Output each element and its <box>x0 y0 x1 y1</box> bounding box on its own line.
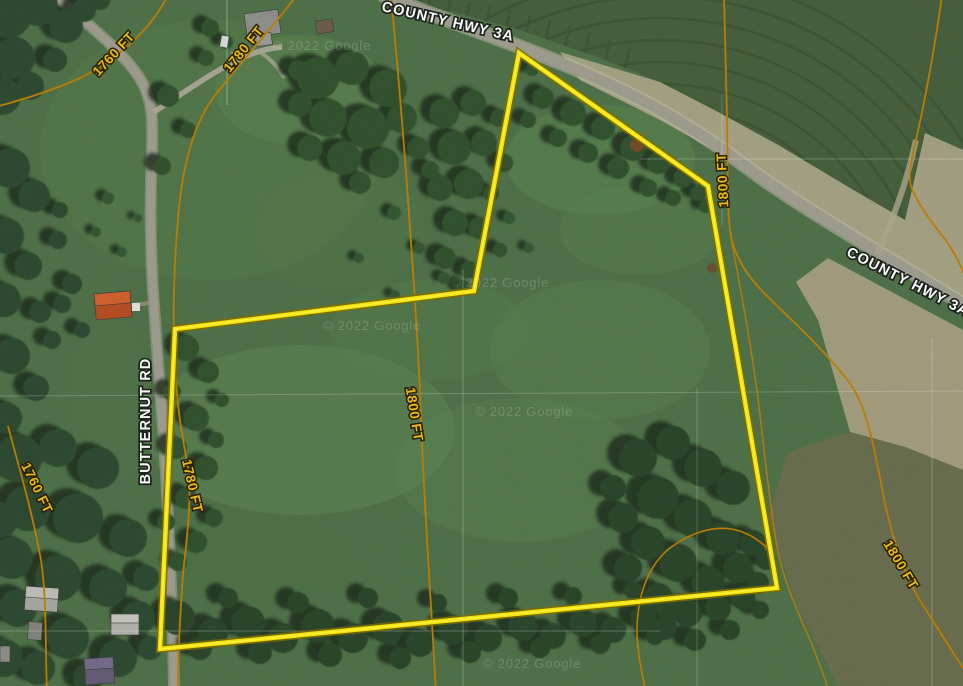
imagery-grain <box>0 0 963 686</box>
satellite-map-canvas[interactable]: 1760 FT 1780 FT 1800 FT 1800 FT 1780 FT … <box>0 0 963 686</box>
